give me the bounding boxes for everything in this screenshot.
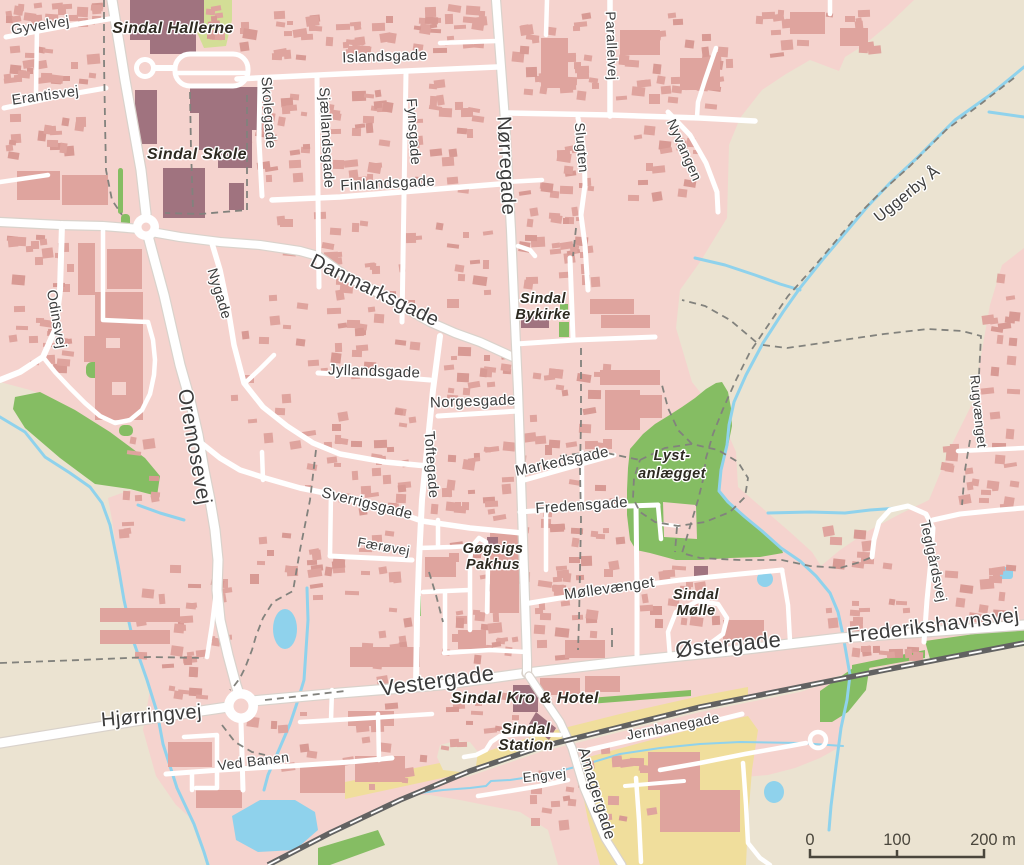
svg-text:Bykirke: Bykirke bbox=[515, 307, 570, 323]
svg-text:Jyllandsgade: Jyllandsgade bbox=[328, 361, 421, 381]
svg-text:200 m: 200 m bbox=[970, 831, 1016, 849]
svg-text:Parallelvej: Parallelvej bbox=[603, 11, 621, 81]
svg-text:anlægget: anlægget bbox=[638, 466, 706, 482]
svg-text:Islandsgade: Islandsgade bbox=[342, 47, 428, 67]
svg-text:Pakhus: Pakhus bbox=[466, 557, 520, 573]
svg-text:Sindal Kro & Hotel: Sindal Kro & Hotel bbox=[451, 690, 599, 707]
svg-text:Sindal: Sindal bbox=[520, 291, 566, 307]
svg-text:Norgesgade: Norgesgade bbox=[430, 392, 516, 412]
svg-text:Mølle: Mølle bbox=[676, 603, 715, 619]
svg-text:Lyst-: Lyst- bbox=[654, 448, 691, 464]
svg-text:100: 100 bbox=[883, 831, 911, 849]
svg-text:Station: Station bbox=[498, 737, 553, 754]
svg-text:0: 0 bbox=[805, 831, 814, 849]
svg-text:Sindal Hallerne: Sindal Hallerne bbox=[112, 20, 234, 37]
svg-text:Sindal: Sindal bbox=[502, 721, 551, 738]
svg-text:Sindal Skole: Sindal Skole bbox=[147, 146, 247, 163]
svg-text:Sindal: Sindal bbox=[673, 587, 719, 603]
svg-text:Gøgsigs: Gøgsigs bbox=[463, 541, 524, 557]
